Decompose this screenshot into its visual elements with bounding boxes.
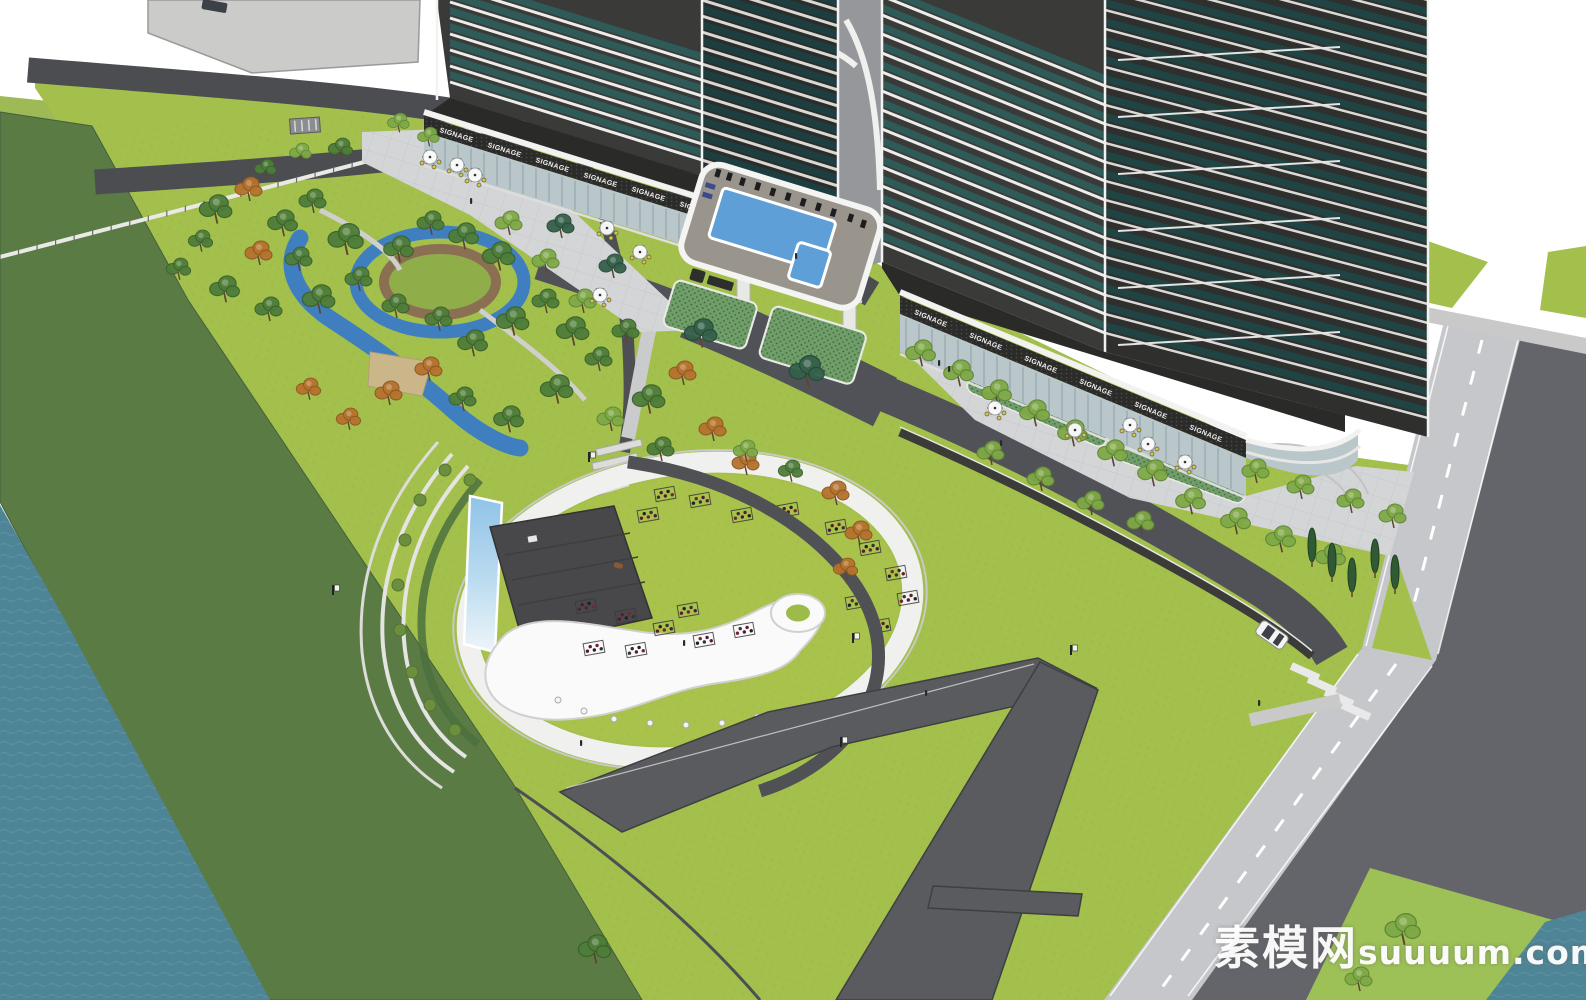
shrub xyxy=(449,724,461,736)
render-viewport: SIGNAGESIGNAGESIGNAGESIGNAGESIGNAGESIGNA… xyxy=(0,0,1586,1000)
canopy-ring-opening xyxy=(786,605,810,622)
parking-ramp[interactable] xyxy=(289,117,320,134)
shrub xyxy=(424,699,436,711)
scene-canvas: SIGNAGESIGNAGESIGNAGESIGNAGESIGNAGESIGNA… xyxy=(0,0,1586,1000)
flower-cluster xyxy=(555,697,561,703)
shrub xyxy=(394,624,406,636)
flower-cluster xyxy=(581,708,587,714)
watermark: 素模网suuuum.com xyxy=(1214,912,1586,978)
shrub xyxy=(392,579,404,591)
shrub xyxy=(399,534,411,546)
shrub xyxy=(464,474,476,486)
flower-cluster xyxy=(719,720,725,726)
pedestrian xyxy=(1258,700,1260,706)
flower-cluster xyxy=(611,716,617,722)
watermark-domain: suuuum.com xyxy=(1358,933,1586,972)
flower-cluster xyxy=(683,722,689,728)
shrub xyxy=(406,666,418,678)
pedestrian xyxy=(1000,440,1002,446)
flower-cluster xyxy=(647,720,653,726)
shrub xyxy=(414,494,426,506)
shrub xyxy=(439,464,451,476)
pedestrian xyxy=(580,740,582,746)
led-screen xyxy=(464,496,502,652)
pedestrian xyxy=(948,366,950,372)
pedestrian xyxy=(938,360,940,366)
pedestrian xyxy=(925,690,927,696)
pedestrian xyxy=(795,253,797,259)
pedestrian xyxy=(470,198,472,204)
pedestrian xyxy=(683,640,685,646)
watermark-site-name: 素模网 xyxy=(1214,912,1358,978)
